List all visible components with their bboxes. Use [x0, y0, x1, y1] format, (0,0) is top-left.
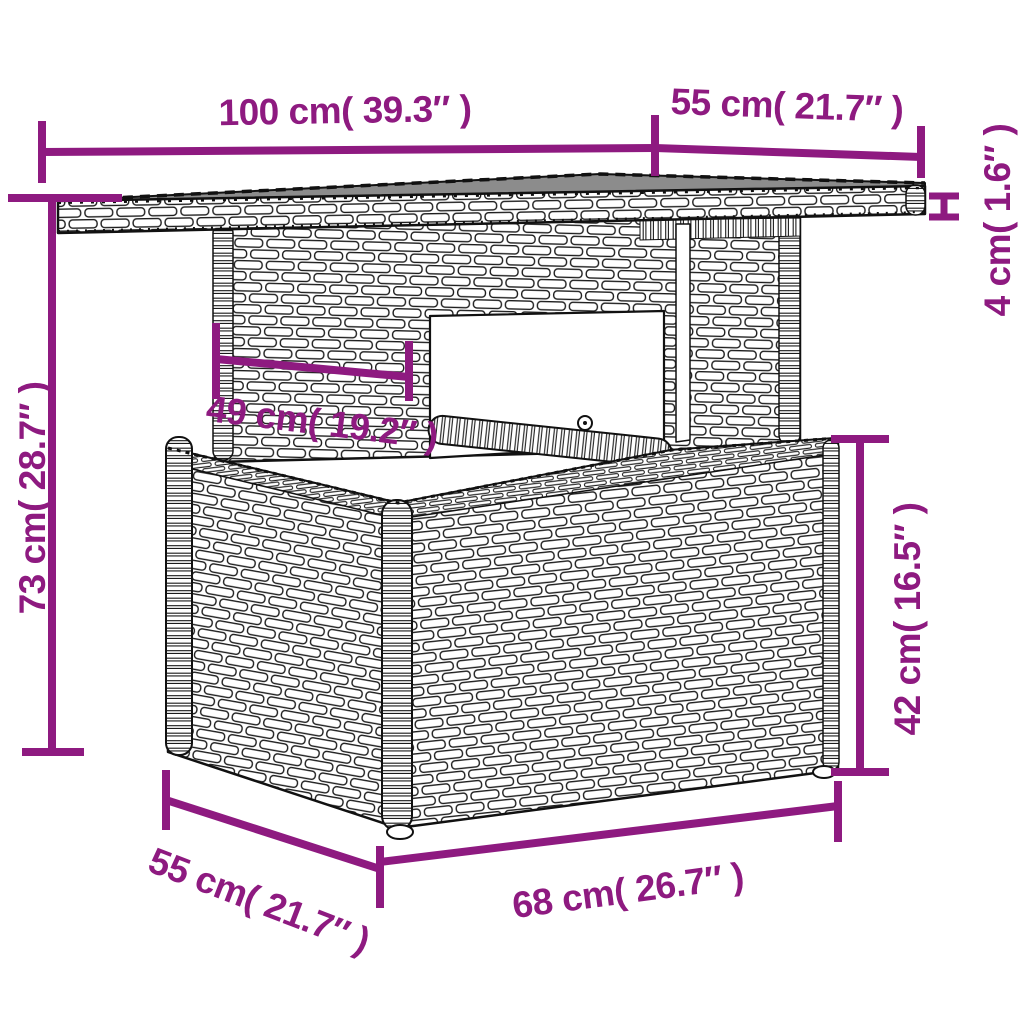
- rail-screw-center: [583, 421, 587, 425]
- dimension-tabletop-thickness: [929, 196, 959, 217]
- pedestal-slot-gap: [676, 224, 690, 442]
- dimension-label-tabletop-depth: 55 cm( 21.7″ ): [670, 81, 904, 131]
- dimension-label-tabletop-length: 100 cm( 39.3″ ): [218, 88, 472, 134]
- dimension-label-base-height: 42 cm( 16.5″ ): [887, 503, 929, 736]
- dimension-label-total-height: 73 cm( 28.7″ ): [12, 382, 54, 615]
- tabletop-right-cap: [906, 185, 925, 215]
- table-illustration: [58, 174, 925, 839]
- dimension-tabletop-depth: [655, 126, 921, 178]
- base-left-corner-post: [166, 437, 192, 755]
- foot-front: [387, 825, 413, 839]
- dimension-label-tabletop-thickness: 4 cm( 1.6″ ): [977, 124, 1019, 317]
- measure-line: [42, 148, 655, 152]
- base-right-corner-edge: [823, 440, 839, 770]
- dimension-diagram: 100 cm( 39.3″ ) 55 cm( 21.7″ ) 4 cm( 1.6…: [0, 0, 1024, 1024]
- pedestal-top-coil-strip: [640, 218, 800, 240]
- pedestal-right-coil-edge: [779, 219, 800, 445]
- measure-line: [655, 148, 921, 157]
- base-front-corner-post: [382, 500, 412, 830]
